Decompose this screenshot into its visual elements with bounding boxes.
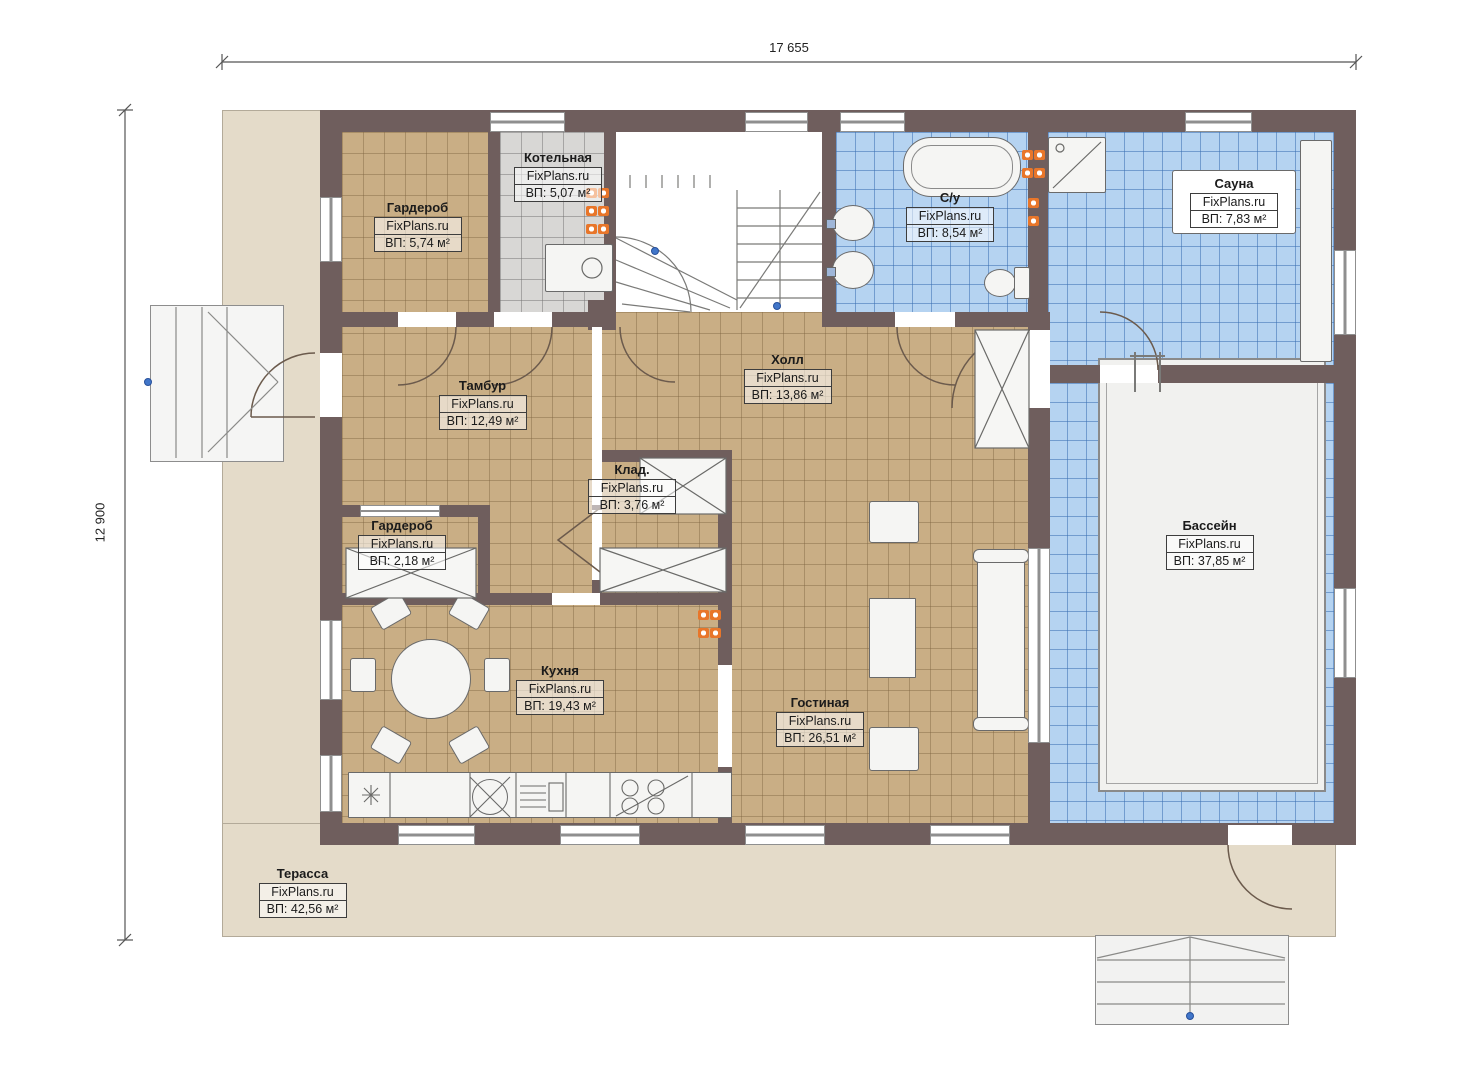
sauna-bench [1300, 140, 1332, 362]
room-area: ВП: 42,56 м² [260, 901, 346, 917]
room-label-boiler: Котельная FixPlans.ru ВП: 5,07 м² [496, 150, 620, 202]
room-name: Гостиная [791, 695, 850, 710]
radiator-icon [1022, 150, 1033, 160]
room-area: ВП: 7,83 м² [1191, 211, 1277, 227]
room-info-box: FixPlans.ru ВП: 7,83 м² [1190, 193, 1278, 228]
window-top-2 [745, 112, 808, 132]
kitchen-counter [348, 772, 732, 818]
window-left-1 [320, 197, 342, 262]
floor-plan-canvas: 17 655 12 900 [0, 0, 1474, 1080]
room-label-sauna: Сауна FixPlans.ru ВП: 7,83 м² [1172, 170, 1296, 234]
brand-watermark: FixPlans.ru [515, 168, 601, 185]
radiator-icon [1022, 168, 1033, 178]
entry-door-gap [320, 353, 342, 417]
room-info-box: FixPlans.ru ВП: 13,86 м² [744, 369, 832, 404]
room-label-living: Гостиная FixPlans.ru ВП: 26,51 м² [765, 695, 875, 747]
node-marker [651, 247, 659, 255]
room-area: ВП: 3,76 м² [589, 497, 675, 513]
opening-kitchen-living [718, 665, 732, 767]
window-top-1 [490, 112, 565, 132]
radiator-icon [1028, 216, 1039, 226]
radiator-icon [598, 224, 609, 234]
room-info-box: FixPlans.ru ВП: 12,49 м² [439, 395, 527, 430]
window-top-3 [840, 112, 905, 132]
entrance-porch-stairs [150, 305, 284, 462]
wall-pool-left-a [1028, 312, 1050, 330]
toilet-bowl [984, 269, 1016, 297]
room-name: Холл [771, 352, 804, 367]
door-gap-sauna [1100, 365, 1158, 383]
node-marker [773, 302, 781, 310]
room-area: ВП: 2,18 м² [359, 553, 445, 569]
room-label-vestibule: Тамбур FixPlans.ru ВП: 12,49 м² [425, 378, 540, 430]
node-marker [1186, 1012, 1194, 1020]
dining-table [391, 639, 471, 719]
coffee-table [869, 598, 916, 678]
wall-pool-left-c [1028, 743, 1050, 823]
brand-watermark: FixPlans.ru [777, 713, 863, 730]
wall-exterior-bottom [320, 823, 1356, 845]
sink-2 [832, 251, 874, 289]
wall-sauna-bottom [1048, 365, 1356, 383]
room-name: Гардероб [387, 200, 448, 215]
dimension-height-label: 12 900 [93, 483, 108, 563]
wall-exterior-right [1334, 110, 1356, 845]
room-label-hall: Холл FixPlans.ru ВП: 13,86 м² [735, 352, 840, 404]
room-name: Гардероб [371, 518, 432, 533]
door-gap-vestibule-boiler [494, 312, 552, 327]
toilet-tank [1014, 267, 1030, 299]
wall-pool-left-b [1028, 408, 1050, 548]
room-area: ВП: 12,49 м² [440, 413, 526, 429]
radiator-icon [1034, 150, 1045, 160]
radiator-icon [586, 224, 597, 234]
bathtub-inner [911, 145, 1013, 189]
glass-partition-living-pool [1028, 548, 1050, 743]
door-gap-bathroom [895, 312, 955, 327]
armchair-2 [869, 727, 919, 771]
window-left-3 [320, 755, 342, 812]
radiator-icon [710, 610, 721, 620]
room-name: Бассейн [1182, 518, 1236, 533]
room-label-wardrobe-small: Гардероб FixPlans.ru ВП: 2,18 м² [352, 518, 452, 570]
room-info-box: FixPlans.ru ВП: 2,18 м² [358, 535, 446, 570]
door-gap-kitchen [552, 593, 600, 605]
room-area: ВП: 26,51 м² [777, 730, 863, 746]
radiator-icon [710, 628, 721, 638]
door-gap-hall-pool [1028, 330, 1050, 408]
dining-chair-3 [350, 658, 376, 692]
room-label-wardrobe-top: Гардероб FixPlans.ru ВП: 5,74 м² [360, 200, 475, 252]
room-info-box: FixPlans.ru ВП: 8,54 м² [906, 207, 994, 242]
room-info-box: FixPlans.ru ВП: 5,07 м² [514, 167, 602, 202]
window-bottom-3 [745, 825, 825, 845]
room-name: Тамбур [459, 378, 506, 393]
terrace-exterior-stairs [1095, 935, 1289, 1025]
sofa-armrest-bottom [973, 717, 1029, 731]
brand-watermark: FixPlans.ru [907, 208, 993, 225]
room-label-terrace: Терасса FixPlans.ru ВП: 42,56 м² [250, 866, 355, 918]
brand-watermark: FixPlans.ru [517, 681, 603, 698]
room-area: ВП: 37,85 м² [1167, 553, 1253, 569]
room-area: ВП: 8,54 м² [907, 225, 993, 241]
wall-vestibule-top [342, 312, 616, 327]
window-right-2 [1334, 588, 1356, 678]
kitchen-sink [472, 779, 508, 815]
brand-watermark: FixPlans.ru [260, 884, 346, 901]
window-bottom-4 [930, 825, 1010, 845]
room-info-box: FixPlans.ru ВП: 42,56 м² [259, 883, 347, 918]
window-left-2 [320, 620, 342, 700]
room-info-box: FixPlans.ru ВП: 5,74 м² [374, 217, 462, 252]
brand-watermark: FixPlans.ru [745, 370, 831, 387]
sofa-armrest-top [973, 549, 1029, 563]
radiator-icon [698, 628, 709, 638]
room-label-kitchen: Кухня FixPlans.ru ВП: 19,43 м² [510, 663, 610, 715]
room-label-storage: Клад. FixPlans.ru ВП: 3,76 м² [586, 462, 678, 514]
room-name: Котельная [524, 150, 592, 165]
room-label-bathroom: С/у FixPlans.ru ВП: 8,54 м² [900, 190, 1000, 242]
pool-basin-inner-edge [1106, 366, 1318, 784]
brand-watermark: FixPlans.ru [440, 396, 526, 413]
room-label-pool: Бассейн FixPlans.ru ВП: 37,85 м² [1152, 518, 1267, 570]
room-info-box: FixPlans.ru ВП: 3,76 м² [588, 479, 676, 514]
window-wardrobe-small [360, 505, 440, 517]
room-name: Клад. [614, 462, 649, 477]
room-info-box: FixPlans.ru ВП: 19,43 м² [516, 680, 604, 715]
room-area: ВП: 19,43 м² [517, 698, 603, 714]
room-area: ВП: 13,86 м² [745, 387, 831, 403]
boiler-counter [545, 244, 613, 292]
room-area: ВП: 5,74 м² [375, 235, 461, 251]
brand-watermark: FixPlans.ru [1191, 194, 1277, 211]
room-name: Кухня [541, 663, 579, 678]
sink-2-tap [826, 267, 836, 277]
dimension-width-label: 17 655 [222, 40, 1356, 55]
window-bottom-2 [560, 825, 640, 845]
wall-wardrobe-small-right [478, 505, 490, 605]
sofa-body [977, 555, 1025, 727]
room-name: Терасса [277, 866, 329, 881]
sink-1 [832, 205, 874, 241]
armchair-1 [869, 501, 919, 543]
wall-storage-top [592, 450, 732, 462]
window-top-4 [1185, 112, 1252, 132]
terrace-door-gap [1228, 825, 1292, 845]
shower-tray [1048, 137, 1106, 193]
radiator-icon [586, 206, 597, 216]
room-name: Сауна [1214, 176, 1253, 191]
radiator-icon [598, 206, 609, 216]
dining-chair-4 [484, 658, 510, 692]
door-gap-storage [592, 510, 602, 580]
brand-watermark: FixPlans.ru [589, 480, 675, 497]
radiator-icon [698, 610, 709, 620]
radiator-icon [1028, 198, 1039, 208]
node-marker [144, 378, 152, 386]
room-area: ВП: 5,07 м² [515, 185, 601, 201]
brand-watermark: FixPlans.ru [1167, 536, 1253, 553]
radiator-icon [1034, 168, 1045, 178]
room-info-box: FixPlans.ru ВП: 37,85 м² [1166, 535, 1254, 570]
room-info-box: FixPlans.ru ВП: 26,51 м² [776, 712, 864, 747]
room-name: С/у [940, 190, 960, 205]
wall-junction-post [588, 300, 616, 330]
window-bottom-1 [398, 825, 475, 845]
sink-1-tap [826, 219, 836, 229]
door-gap-vestibule-wardrobe [398, 312, 456, 327]
brand-watermark: FixPlans.ru [359, 536, 445, 553]
window-right-1 [1334, 250, 1356, 335]
brand-watermark: FixPlans.ru [375, 218, 461, 235]
